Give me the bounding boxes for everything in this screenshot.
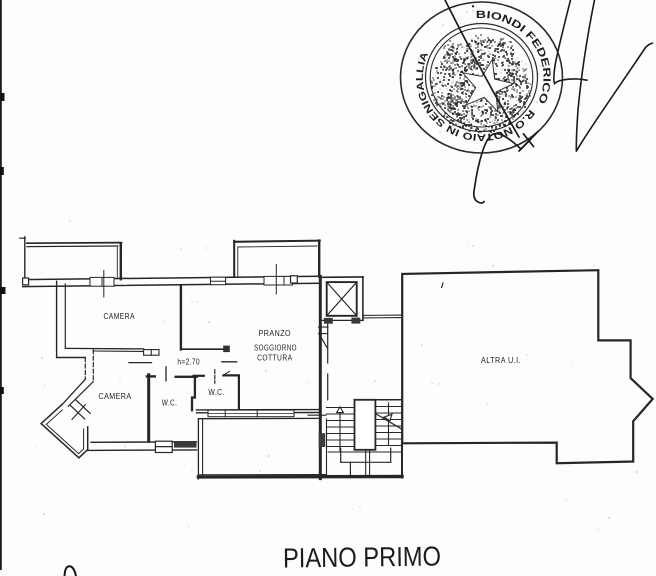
svg-text:h=2.70: h=2.70 (177, 356, 200, 366)
svg-text:PRANZO: PRANZO (259, 328, 291, 338)
svg-text:W.C.: W.C. (162, 398, 178, 408)
svg-text:W.C.: W.C. (208, 387, 224, 397)
svg-text:PIANO PRIMO: PIANO PRIMO (283, 541, 441, 574)
svg-text:CAMERA: CAMERA (99, 391, 132, 401)
svg-text:COTTURA: COTTURA (257, 352, 292, 362)
svg-text:ALTRA U.I.: ALTRA U.I. (481, 355, 521, 365)
svg-text:SOGGIORNO: SOGGIORNO (254, 342, 297, 352)
svg-text:CAMERA: CAMERA (104, 311, 136, 321)
